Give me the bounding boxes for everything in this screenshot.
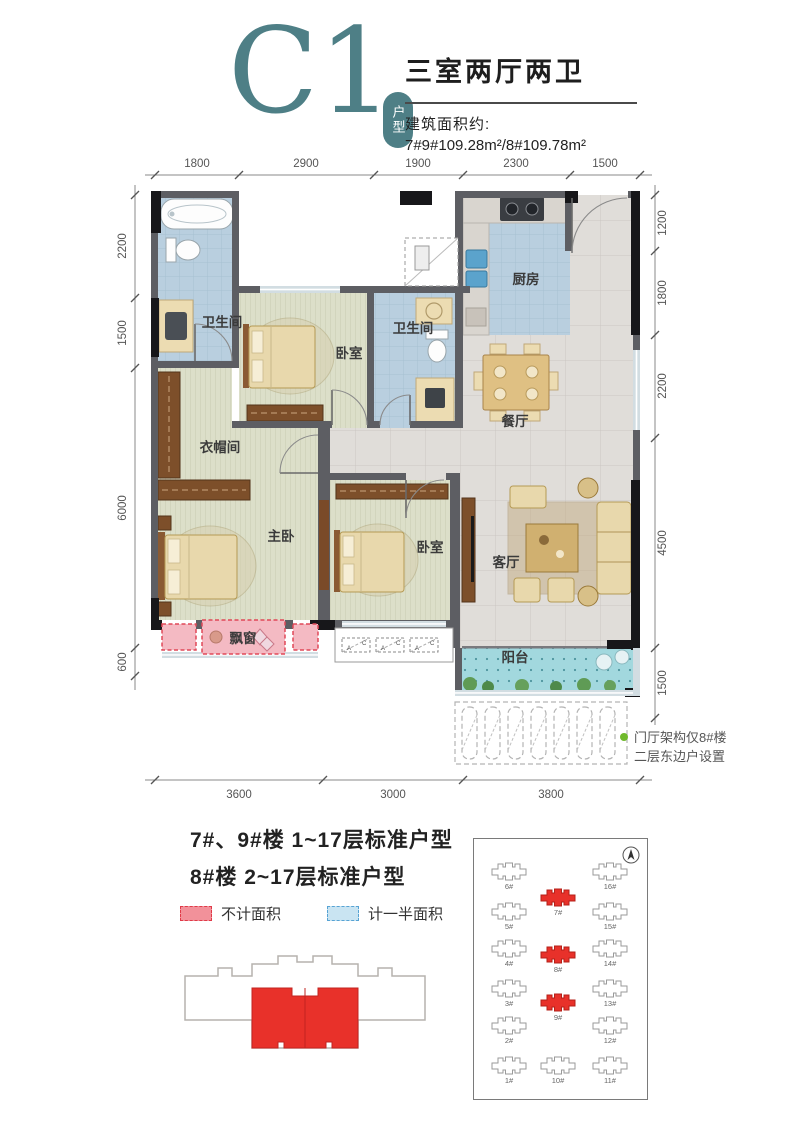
site-building-2: 2# xyxy=(489,1015,529,1045)
ac-letter-a: A xyxy=(415,646,419,652)
dim-right-1: 1800 xyxy=(657,280,669,306)
room-label-master: 主卧 xyxy=(268,528,295,544)
building-key-plan xyxy=(180,948,430,1060)
legend-blue-swatch xyxy=(327,906,359,921)
floor-info-line-1: 7#、9#楼 1~17层标准户型 xyxy=(190,822,453,859)
site-building-5: 5# xyxy=(489,901,529,931)
floor-info-line-2: 8#楼 2~17层标准户型 xyxy=(190,859,453,896)
dim-right-2: 2200 xyxy=(657,373,669,399)
dim-right-0: 1200 xyxy=(657,210,669,236)
dim-bottom-2: 3800 xyxy=(538,789,564,801)
title-block: 三室两厅两卫 建筑面积约: 7#9#109.28m²/8#109.78m² xyxy=(405,50,655,154)
entry-hall-structure xyxy=(455,702,627,764)
floorplan-page: C1 户型 三室两厅两卫 建筑面积约: 7#9#109.28m²/8#109.7… xyxy=(0,0,800,1131)
ac-unit-3: A C xyxy=(410,638,438,652)
room-label-bay-window: 飘窗 xyxy=(230,630,257,646)
dim-top-1: 2900 xyxy=(293,158,319,170)
duct-shaft xyxy=(405,238,458,286)
room-label-kitchen: 厨房 xyxy=(513,271,540,287)
site-plan: 6# 16# 7# 5# 15# 4# 8# 14# 3# 9# 13# 2# … xyxy=(473,838,648,1100)
room-label-bedroom-top: 卧室 xyxy=(336,345,363,361)
site-building-11: 11# xyxy=(590,1055,630,1085)
dim-top-4: 1500 xyxy=(592,158,618,170)
legend-item-excluded: 不计面积 xyxy=(180,903,281,924)
area-legend: 不计面积 计一半面积 xyxy=(180,903,489,924)
ac-unit-1: A C xyxy=(342,638,370,652)
legend-item-half: 计一半面积 xyxy=(327,903,443,924)
site-building-1: 1# xyxy=(489,1055,529,1085)
site-building-6: 6# xyxy=(489,861,529,891)
dining-table xyxy=(474,344,558,421)
site-building-14: 14# xyxy=(590,938,630,968)
toilet-bath1 xyxy=(166,238,200,262)
site-building-12: 12# xyxy=(590,1015,630,1045)
entry-hall-note: 门厅架构仅8#楼 二层东边户设置 xyxy=(620,728,726,766)
dim-top-3: 2300 xyxy=(503,158,529,170)
note-line-1: 门厅架构仅8#楼 xyxy=(634,728,726,747)
dim-left-1: 1500 xyxy=(117,320,129,346)
site-building-9: 9# xyxy=(538,992,578,1022)
site-building-15: 15# xyxy=(590,901,630,931)
ac-letter-c: C xyxy=(430,641,435,647)
dim-top-2: 1900 xyxy=(405,158,431,170)
bathtub xyxy=(161,199,233,229)
site-building-10: 10# xyxy=(538,1055,578,1085)
washing-machine xyxy=(416,378,454,422)
bed-bedroom-top xyxy=(243,318,334,394)
ac-letter-a: A xyxy=(347,646,351,652)
ac-unit-2: A C xyxy=(376,638,404,652)
room-label-cloakroom: 衣帽间 xyxy=(200,439,241,455)
dim-bottom-0: 3600 xyxy=(226,789,252,801)
ac-letter-c: C xyxy=(362,641,367,647)
layout-title: 三室两厅两卫 xyxy=(405,50,655,89)
ac-letter-c: C xyxy=(396,641,401,647)
room-label-balcony: 阳台 xyxy=(502,649,529,665)
legend-excluded-label: 不计面积 xyxy=(221,903,281,924)
dim-left-0: 2200 xyxy=(117,233,129,259)
unit-code: C1 xyxy=(228,10,393,134)
site-building-13: 13# xyxy=(590,978,630,1008)
floor-info: 7#、9#楼 1~17层标准户型 8#楼 2~17层标准户型 xyxy=(190,822,453,896)
dim-left-3: 600 xyxy=(117,652,129,671)
area-label: 建筑面积约: xyxy=(405,113,655,134)
legend-half-label: 计一半面积 xyxy=(368,903,443,924)
dim-bottom-1: 3000 xyxy=(380,789,406,801)
note-bullet-icon xyxy=(620,733,628,741)
site-building-3: 3# xyxy=(489,978,529,1008)
room-label-living: 客厅 xyxy=(492,554,521,570)
title-divider xyxy=(405,102,637,104)
room-label-bath2: 卫生间 xyxy=(393,320,434,336)
floor-plan: A C A C A C 卫 xyxy=(110,150,690,810)
room-label-bedroom2: 卧室 xyxy=(417,539,444,555)
legend-red-swatch xyxy=(180,906,212,921)
dim-top-0: 1800 xyxy=(184,158,210,170)
dim-right-3: 4500 xyxy=(657,530,669,556)
ac-platform: A C A C A C xyxy=(335,628,453,662)
dim-right-4: 1500 xyxy=(657,670,669,696)
site-building-16: 16# xyxy=(590,861,630,891)
ac-letter-a: A xyxy=(381,646,385,652)
site-building-4: 4# xyxy=(489,938,529,968)
note-line-2: 二层东边户设置 xyxy=(634,747,726,766)
site-building-7: 7# xyxy=(538,887,578,917)
site-building-8: 8# xyxy=(538,944,578,974)
room-label-dining: 餐厅 xyxy=(501,413,530,429)
dim-left-2: 6000 xyxy=(117,495,129,521)
room-label-bath1: 卫生间 xyxy=(202,314,243,330)
vanity-bath1 xyxy=(159,300,193,352)
